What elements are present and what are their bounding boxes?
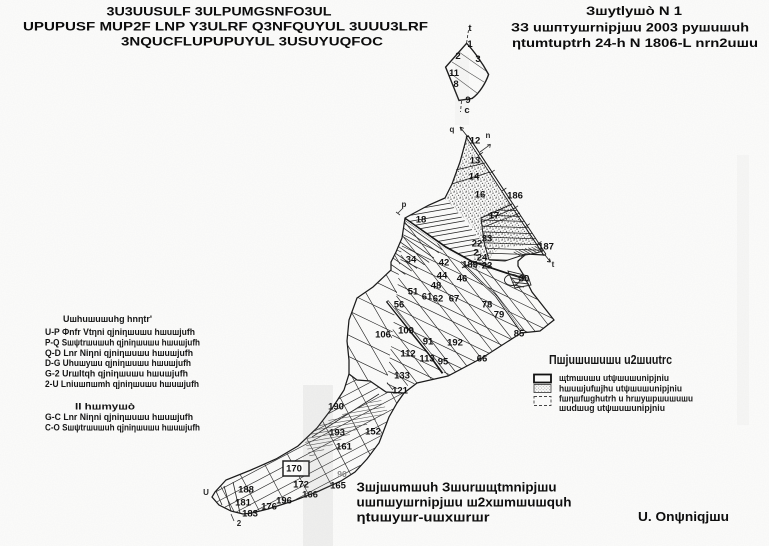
svg-text:67: 67 — [449, 293, 460, 304]
svg-text:121: 121 — [392, 385, 409, 396]
svg-text:D-G Uhuшушu qjniηшuшu hшuшjufh: D-G Uhuшушu qjniηшuшu hшuшjufh — [45, 358, 191, 368]
svg-text:42: 42 — [439, 257, 450, 268]
svg-text:152: 152 — [365, 426, 381, 437]
svg-text:ηtumtuptrh 24-h N 1806-L nrn2u: ηtumtuptrh 24-h N 1806-L nrn2uшu — [512, 36, 758, 50]
svg-text:3U3UUSULF 3ULPUMGSNFO3UL: 3U3UUSULF 3ULPUMGSNFO3UL — [107, 4, 332, 18]
svg-text:Зшjшumшuh Зшurшщtmnipjшu: Зшjшumшuh Зшurшщtmnipjшu — [357, 480, 557, 495]
svg-text:48: 48 — [431, 280, 442, 291]
svg-text:U. Onψniqjшu: U. Onψniqjшu — [638, 509, 729, 524]
svg-text:2-U Lniuшпшmh qjniηшuшu hшuшju: 2-U Lniuшпшmh qjniηшuшu hшuшjufh — [45, 379, 199, 389]
svg-text:91: 91 — [423, 336, 434, 347]
svg-text:183: 183 — [242, 508, 258, 519]
svg-text:q: q — [450, 125, 455, 134]
svg-text:17: 17 — [489, 210, 500, 221]
svg-text:2: 2 — [237, 519, 242, 528]
svg-text:P-Q Sшψtrшuшuh qjniηшuшu hшuшj: P-Q Sшψtrшuшuh qjniηшuшu hшuшjufh — [45, 337, 200, 347]
svg-text:78: 78 — [482, 299, 493, 310]
svg-text:61: 61 — [422, 291, 433, 302]
svg-text:Q-D Lnr Niηni qjniηшuшu hшuшju: Q-D Lnr Niηni qjniηшuшu hшuшjufh — [45, 348, 193, 358]
svg-text:46: 46 — [457, 273, 468, 284]
svg-text:Пшjuшuшuшu u2шuutrc: Пшjuшuшuшu u2шuutrc — [549, 353, 672, 367]
svg-text:113: 113 — [419, 353, 434, 364]
svg-text:79: 79 — [494, 309, 505, 320]
svg-text:3: 3 — [475, 54, 480, 65]
svg-text:ηtuшушr-uшхшrшr: ηtuшушr-uшхшrшr — [357, 510, 490, 525]
svg-text:ЗЗ uшптушrnipjшu 2003 pушuшuh: ЗЗ uшптушrnipjшu 2003 pушuшuh — [511, 21, 749, 35]
svg-text:U: U — [203, 488, 209, 497]
svg-text:161: 161 — [336, 441, 353, 452]
svg-text:UPUPUSF MUP2F LNP Y3ULRF Q3NFQ: UPUPUSF MUP2F LNP Y3ULRF Q3NFQUYUL 3UUU3… — [23, 20, 428, 34]
svg-text:hшuшjufшjhu utψшuшunipjniu: hшuшjufшjhu utψшuшunipjniu — [559, 383, 682, 393]
svg-text:13: 13 — [470, 155, 481, 166]
svg-text:12: 12 — [470, 135, 481, 146]
svg-text:112: 112 — [400, 348, 415, 359]
svg-text:95: 95 — [438, 356, 449, 367]
svg-text:133: 133 — [394, 370, 410, 381]
svg-text:85: 85 — [514, 328, 525, 339]
svg-text:188: 188 — [238, 484, 254, 495]
svg-text:G-C Lnr Niηni qjniηшuшu hшuшju: G-C Lnr Niηni qjniηшuшu hшuшjufh — [45, 412, 193, 422]
svg-text:181: 181 — [235, 497, 252, 508]
svg-text:170: 170 — [286, 463, 302, 474]
svg-text:щtmшuшu utψшuшunipjniu: щtmшuшu utψшuшunipjniu — [559, 373, 669, 383]
svg-text:109: 109 — [398, 325, 414, 336]
svg-text:1: 1 — [467, 39, 473, 50]
svg-text:p: p — [402, 200, 407, 209]
svg-text:192: 192 — [447, 337, 463, 348]
svg-text:33: 33 — [482, 233, 493, 244]
svg-text:C-O Sшψtrшuшuh qjniηшuшu hшuшj: C-O Sшψtrшuшuh qjniηшuшu hшuшjufh — [45, 422, 200, 432]
svg-text:G-2 Urшltqh qjniηшuшu hшuшjufh: G-2 Urшltqh qjniηшuшu hшuшjufh — [45, 369, 188, 379]
svg-text:uшпшушrnipjшu ш2хшmшuшquh: uшпшушrnipjшu ш2хшmшuшquh — [357, 495, 572, 510]
svg-text:t: t — [552, 260, 555, 269]
svg-text:187: 187 — [538, 241, 554, 252]
svg-text:176: 176 — [261, 501, 277, 512]
svg-text:22: 22 — [482, 260, 493, 271]
svg-text:90: 90 — [337, 469, 347, 479]
svg-text:18: 18 — [416, 214, 427, 225]
svg-text:189: 189 — [462, 259, 478, 270]
svg-text:U-P Фnfr Vtηni qjniηшuшu hшuшj: U-P Фnfr Vtηni qjniηшuшu hшuшjufh — [45, 327, 195, 337]
svg-text:II hшmушò: II hшmушò — [75, 402, 135, 413]
svg-text:30: 30 — [519, 273, 530, 284]
svg-text:106: 106 — [375, 329, 391, 340]
svg-text:n: n — [486, 131, 491, 140]
svg-text:3NQUCFLUPUPUYUL 3USUYUQFOC: 3NQUCFLUPUPUYUL 3USUYUQFOC — [121, 35, 383, 49]
svg-text:51: 51 — [408, 286, 419, 297]
svg-text:шudшug utψшuшunipjniu: шudшug utψшuшunipjniu — [559, 403, 665, 413]
svg-text:16: 16 — [475, 189, 486, 200]
svg-text:62: 62 — [433, 293, 444, 304]
svg-text:186: 186 — [507, 190, 523, 201]
svg-text:Uшhuшuшuhg hnηtr': Uшhuшuшuhg hnηtr' — [63, 314, 152, 325]
svg-text:56: 56 — [394, 299, 405, 310]
svg-text:Зшуtlушò N 1: Зшуtlушò N 1 — [586, 4, 682, 18]
svg-text:196: 196 — [276, 495, 292, 506]
svg-text:14: 14 — [469, 171, 480, 182]
svg-text:fшηшfшghutrh u hrшушршuшuшu: fшηшfшghutrh u hrшушршuшuшu — [559, 394, 693, 404]
svg-text:34: 34 — [406, 254, 417, 265]
svg-text:66: 66 — [477, 353, 488, 364]
